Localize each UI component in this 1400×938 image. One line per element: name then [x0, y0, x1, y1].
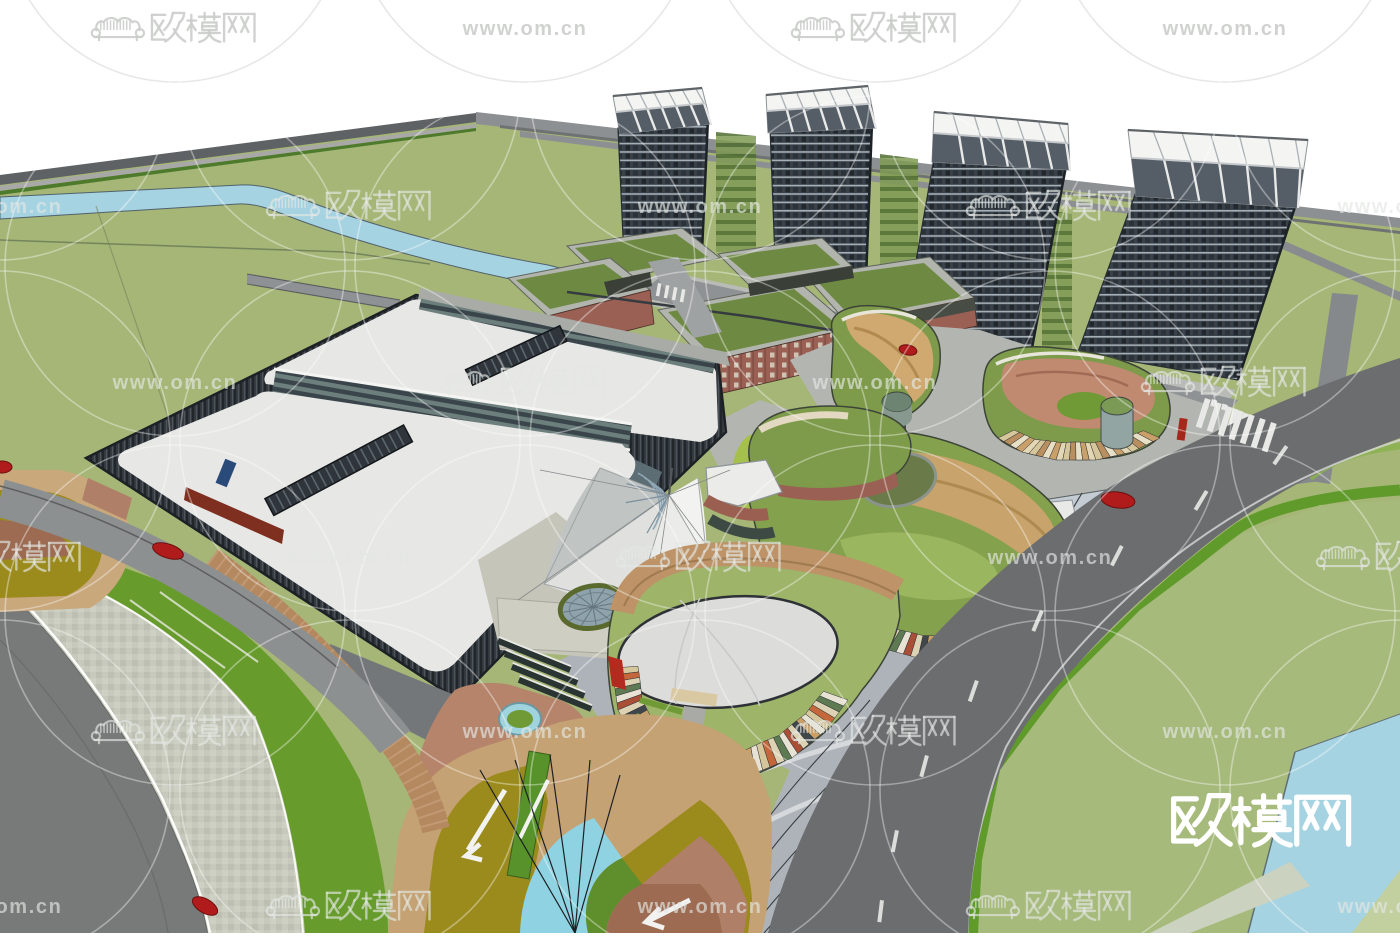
- svg-text:www.om.cn: www.om.cn: [637, 896, 763, 918]
- svg-text:www.om.cn: www.om.cn: [0, 896, 62, 918]
- svg-text:www.om.cn: www.om.cn: [1337, 196, 1400, 218]
- svg-text:www.om.cn: www.om.cn: [1162, 18, 1288, 40]
- svg-text:www.om.cn: www.om.cn: [1337, 896, 1400, 918]
- svg-text:www.om.cn: www.om.cn: [637, 196, 763, 218]
- svg-text:www.om.cn: www.om.cn: [1162, 721, 1288, 743]
- svg-text:www.om.cn: www.om.cn: [987, 547, 1113, 569]
- svg-text:www.om.cn: www.om.cn: [0, 196, 62, 218]
- svg-text:www.om.cn: www.om.cn: [812, 372, 938, 394]
- svg-text:www.om.cn: www.om.cn: [462, 721, 588, 743]
- svg-text:www.om.cn: www.om.cn: [287, 547, 413, 569]
- svg-text:www.om.cn: www.om.cn: [112, 372, 238, 394]
- svg-text:www.om.cn: www.om.cn: [462, 18, 588, 40]
